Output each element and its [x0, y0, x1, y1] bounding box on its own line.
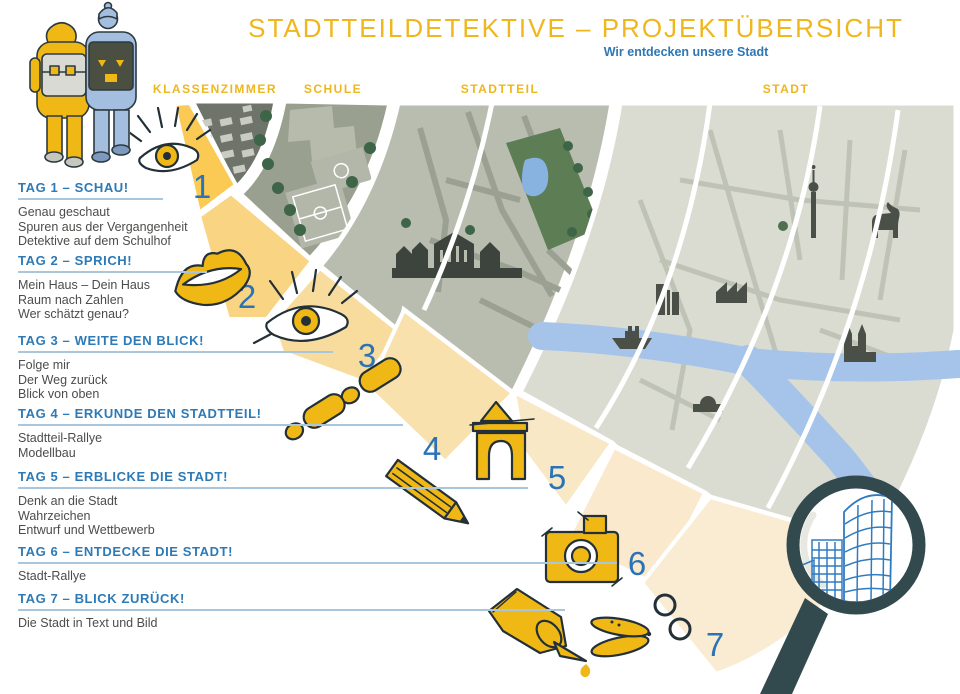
day-item: Blick von oben — [18, 387, 348, 402]
day-block-6: TAG 6 – ENTDECKE DIE STADT! Stadt-Rallye — [18, 544, 348, 584]
tree — [778, 221, 788, 231]
zone-label-schule: SCHULE — [304, 82, 362, 96]
day-item: Wer schätzt genau? — [18, 307, 348, 322]
detective-kids-illustration — [30, 3, 136, 168]
zone-label-stadtteil: STADTTEIL — [461, 82, 540, 96]
day-block-5: TAG 5 – ERBLICKE DIE STADT! Denk an die … — [18, 469, 348, 538]
day-heading: TAG 6 – ENTDECKE DIE STADT! — [18, 544, 348, 559]
heading-rule — [18, 609, 565, 611]
poster-title: STADTTEILDETEKTIVE – PROJEKTÜBERSICHT — [248, 13, 904, 44]
day-heading: TAG 2 – SPRICH! — [18, 253, 348, 268]
day-item: Der Weg zurück — [18, 373, 348, 388]
pencil-icon-day5 — [386, 460, 474, 531]
day-item: Stadtteil-Rallye — [18, 431, 348, 446]
day-number-7: 7 — [706, 626, 724, 663]
heading-rule — [18, 351, 333, 353]
heading-rule — [18, 271, 207, 273]
day-number-4: 4 — [423, 430, 441, 467]
day-item: Spuren aus der Vergangenheit — [18, 220, 348, 235]
zone-label-stadt: STADT — [763, 82, 810, 96]
day-heading: TAG 3 – WEITE DEN BLICK! — [18, 333, 348, 348]
day-item: Genau geschaut — [18, 205, 348, 220]
day-block-7: TAG 7 – BLICK ZURÜCK! Die Stadt in Text … — [18, 591, 348, 631]
heading-rule — [18, 487, 528, 489]
day-item: Entwurf und Wettbewerb — [18, 523, 348, 538]
zone-label-klassenzimmer: KLASSENZIMMER — [153, 82, 277, 96]
poster-subtitle: Wir entdecken unsere Stadt — [604, 45, 769, 59]
day-block-4: TAG 4 – ERKUNDE DEN STADTTEIL! Stadtteil… — [18, 406, 348, 460]
kid-blue — [86, 3, 136, 163]
day-item: Denk an die Stadt — [18, 494, 348, 509]
gray-backpack — [42, 54, 86, 96]
day-heading: TAG 1 – SCHAU! — [18, 180, 348, 195]
day-number-6: 6 — [628, 545, 646, 582]
heading-rule — [18, 424, 403, 426]
day-block-2: TAG 2 – SPRICH! Mein Haus – Dein Haus Ra… — [18, 253, 348, 322]
day-item: Die Stadt in Text und Bild — [18, 616, 348, 631]
day-item: Raum nach Zahlen — [18, 293, 348, 308]
scissors-icon-day7 — [590, 595, 690, 660]
day-item: Mein Haus – Dein Haus — [18, 278, 348, 293]
day-item: Modellbau — [18, 446, 348, 461]
heading-rule — [18, 198, 163, 200]
pond — [522, 158, 548, 196]
day-number-5: 5 — [548, 459, 566, 496]
day-block-1: TAG 1 – SCHAU! Genau geschaut Spuren aus… — [18, 180, 348, 249]
day-heading: TAG 4 – ERKUNDE DEN STADTTEIL! — [18, 406, 348, 421]
heading-rule — [18, 562, 617, 564]
project-overview-poster: 1 2 3 4 5 6 7 — [0, 0, 960, 694]
day-item: Folge mir — [18, 358, 348, 373]
day-item: Wahrzeichen — [18, 509, 348, 524]
dark-backpack — [89, 42, 133, 90]
glue-tube-icon-day7 — [489, 589, 590, 677]
day-block-3: TAG 3 – WEITE DEN BLICK! Folge mir Der W… — [18, 333, 348, 402]
day-heading: TAG 7 – BLICK ZURÜCK! — [18, 591, 348, 606]
day-item: Detektive auf dem Schulhof — [18, 234, 348, 249]
day-item: Stadt-Rallye — [18, 569, 348, 584]
kid-yellow — [30, 23, 89, 167]
day-heading: TAG 5 – ERBLICKE DIE STADT! — [18, 469, 348, 484]
